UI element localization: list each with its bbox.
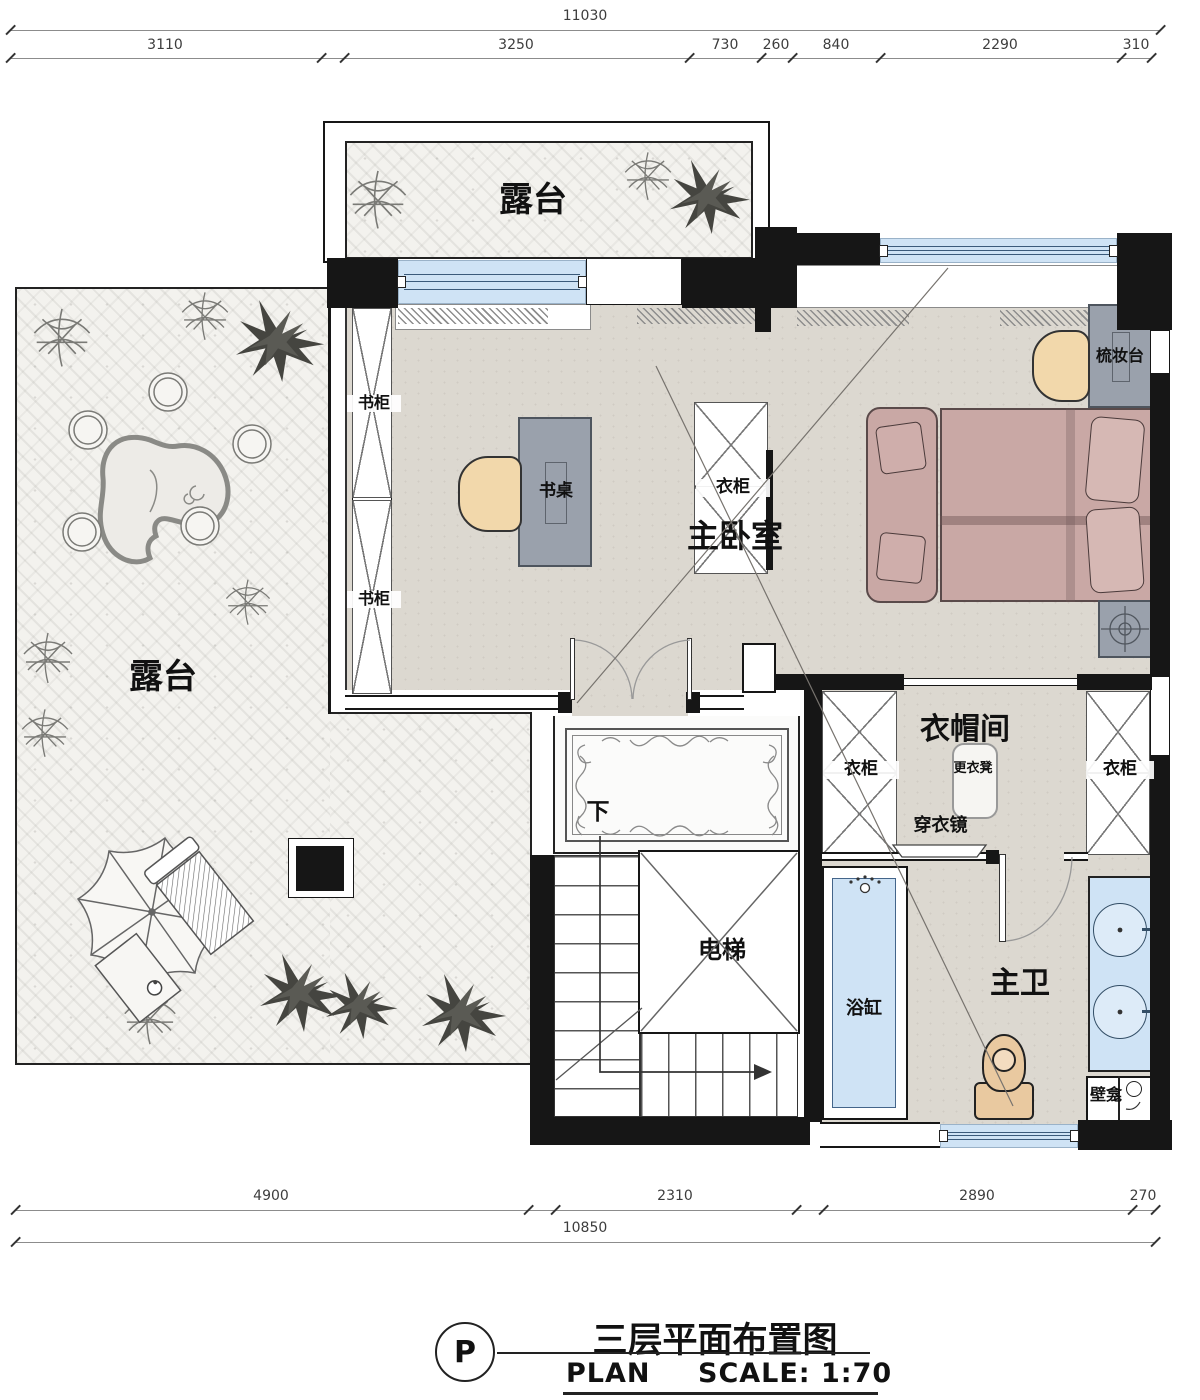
wardrobe-right-label: 衣柜	[1086, 761, 1154, 779]
bathtub-label: 浴缸	[828, 1000, 900, 1019]
stairs-bottom	[640, 1034, 798, 1117]
sink-basin	[1093, 985, 1147, 1039]
plan-title-en: PLAN	[566, 1358, 651, 1389]
plan-marker: P	[435, 1322, 495, 1382]
window-bedroom	[880, 238, 1117, 263]
dresser-label: 梳妆台	[1082, 348, 1158, 365]
pillow	[1085, 506, 1145, 594]
planter	[296, 846, 344, 891]
floor-plan: 11030 3110 3250 730 260 840 2290 310 露台 …	[0, 0, 1200, 1400]
changing-stool	[952, 743, 998, 819]
dim-bottom-seg: 2890	[947, 1188, 1007, 1204]
nightstand	[1098, 600, 1152, 658]
bedroom-door-leaf	[687, 638, 692, 700]
plan-scale: SCALE: 1:70	[698, 1358, 892, 1389]
dim-line-top-segs	[10, 58, 1151, 59]
dim-top-seg: 2290	[970, 37, 1030, 53]
dim-top-seg: 260	[746, 37, 806, 53]
desk-label: 书桌	[521, 483, 591, 501]
stool-label: 更衣凳	[933, 762, 1013, 776]
terrace-left-ext	[330, 712, 532, 1065]
dim-top-total: 11030	[555, 8, 615, 24]
cloakroom-label: 衣帽间	[865, 714, 1065, 746]
dim-top-seg: 310	[1106, 37, 1166, 53]
dim-bottom-seg: 4900	[241, 1188, 301, 1204]
dim-top-seg: 840	[806, 37, 866, 53]
niche-label: 壁龛	[1080, 1087, 1132, 1104]
dim-bottom-seg: 270	[1113, 1188, 1173, 1204]
bookcase-label-a: 书柜	[347, 395, 401, 412]
stairs-left	[554, 855, 640, 1117]
terrace-top-label: 露台	[473, 183, 593, 219]
bedroom-label: 主卧室	[635, 520, 835, 554]
terrace-left-label: 露台	[103, 660, 223, 696]
dim-line-bottom-segs	[15, 1210, 1155, 1211]
wardrobe-bedroom-label: 衣柜	[696, 479, 770, 497]
dim-line-top-total	[10, 30, 1160, 31]
pillow	[1084, 416, 1145, 504]
bath-door-leaf	[999, 854, 1006, 942]
dim-top-seg: 3110	[135, 37, 195, 53]
desk-chair	[458, 456, 522, 532]
bath-label: 主卫	[950, 968, 1090, 1000]
stairs-down-label: 下	[583, 800, 613, 824]
dim-bottom-total: 10850	[555, 1220, 615, 1236]
window-bath	[940, 1124, 1078, 1148]
dim-bottom-seg: 2310	[645, 1188, 705, 1204]
dim-top-seg: 3250	[486, 37, 546, 53]
wardrobe-left-label: 衣柜	[823, 761, 899, 779]
dim-line-bottom-total	[15, 1242, 1155, 1243]
bathtub	[832, 878, 896, 1108]
bookcase-label-b: 书柜	[347, 591, 401, 608]
plan-title-cn: 三层平面布置图	[535, 1312, 895, 1363]
elevator-label: 电梯	[670, 938, 774, 963]
dresser-chair	[1032, 330, 1090, 402]
window-study	[398, 260, 586, 304]
sink-basin	[1093, 903, 1147, 957]
bedroom-door-leaf	[570, 638, 575, 700]
mirror-label: 穿衣镜	[893, 817, 988, 836]
